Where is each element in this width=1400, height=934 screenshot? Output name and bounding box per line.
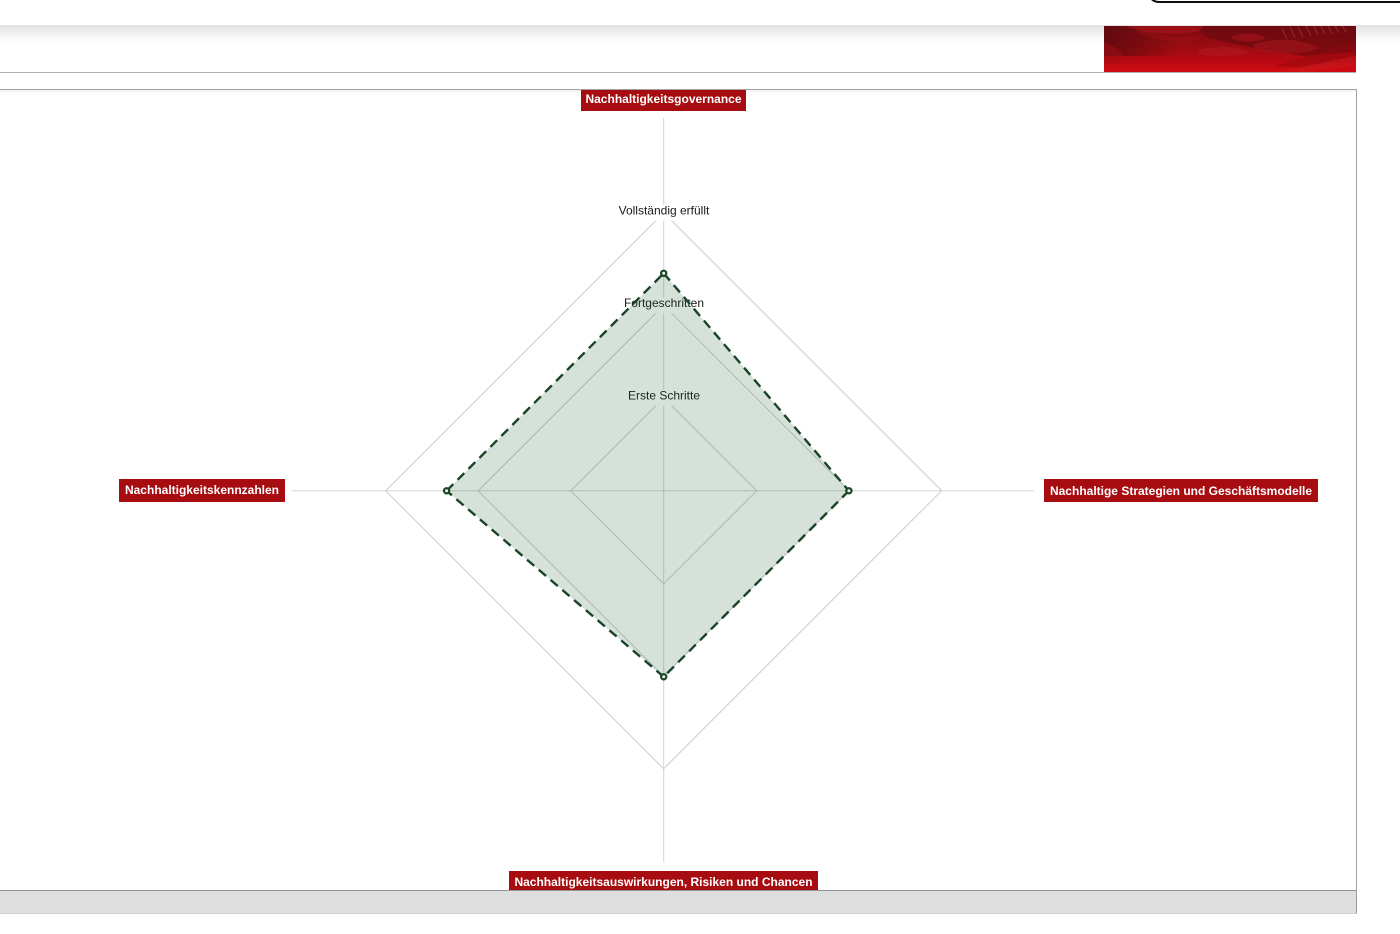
svg-text:Vollständig erfüllt: Vollständig erfüllt (619, 203, 710, 217)
